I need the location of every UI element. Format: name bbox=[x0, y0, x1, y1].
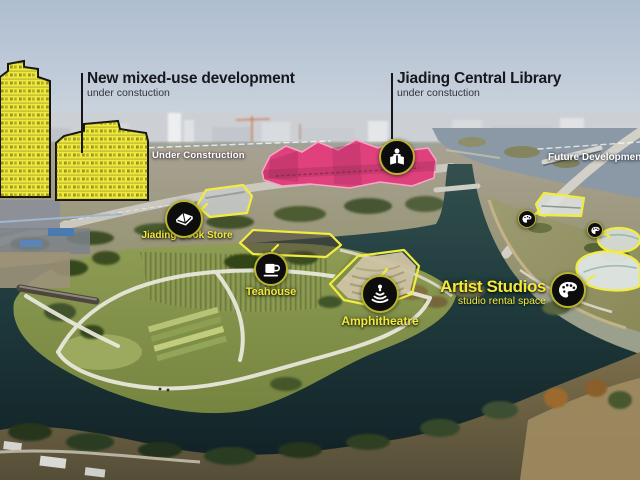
artist-studios-label: Artist Studios bbox=[420, 277, 546, 297]
studio-marker-2 bbox=[587, 222, 603, 238]
palette-icon bbox=[556, 278, 580, 302]
reading-person-icon bbox=[386, 146, 408, 168]
artist-studios-marker bbox=[550, 272, 586, 308]
palette-icon bbox=[521, 213, 533, 225]
library-title: Jiading Central Library bbox=[397, 71, 561, 87]
mixed-use-title: New mixed-use development bbox=[87, 71, 295, 87]
open-book-icon bbox=[170, 205, 197, 232]
teacup-icon bbox=[261, 259, 282, 280]
artist-studios-sublabel: studio rental space bbox=[420, 295, 546, 307]
teahouse-marker bbox=[254, 252, 288, 286]
amphitheatre-marker bbox=[361, 275, 399, 313]
callout-mixed-use-development: New mixed-use development under constuct… bbox=[87, 71, 295, 100]
under-construction-label: Under Construction bbox=[152, 150, 245, 161]
book-store-marker bbox=[165, 200, 203, 238]
teahouse-label: Teahouse bbox=[211, 286, 331, 298]
future-development-label: Future Development bbox=[548, 152, 640, 163]
mixed-use-subtitle: under constuction bbox=[87, 87, 295, 100]
library-leader-line bbox=[391, 73, 393, 139]
studio-marker-1 bbox=[518, 210, 536, 228]
mixed-use-leader-line bbox=[81, 73, 83, 153]
bookstore-outline bbox=[197, 185, 252, 217]
teahouse-outline bbox=[240, 230, 341, 257]
library-marker bbox=[379, 139, 415, 175]
annotated-aerial-masterplan: New mixed-use development under constuct… bbox=[0, 0, 640, 480]
amphitheatre-tiers-icon bbox=[368, 282, 392, 306]
amphitheatre-label: Amphitheatre bbox=[320, 314, 440, 328]
palette-icon bbox=[590, 225, 601, 236]
callout-central-library: Jiading Central Library under constuctio… bbox=[397, 71, 561, 100]
library-subtitle: under constuction bbox=[397, 87, 561, 100]
